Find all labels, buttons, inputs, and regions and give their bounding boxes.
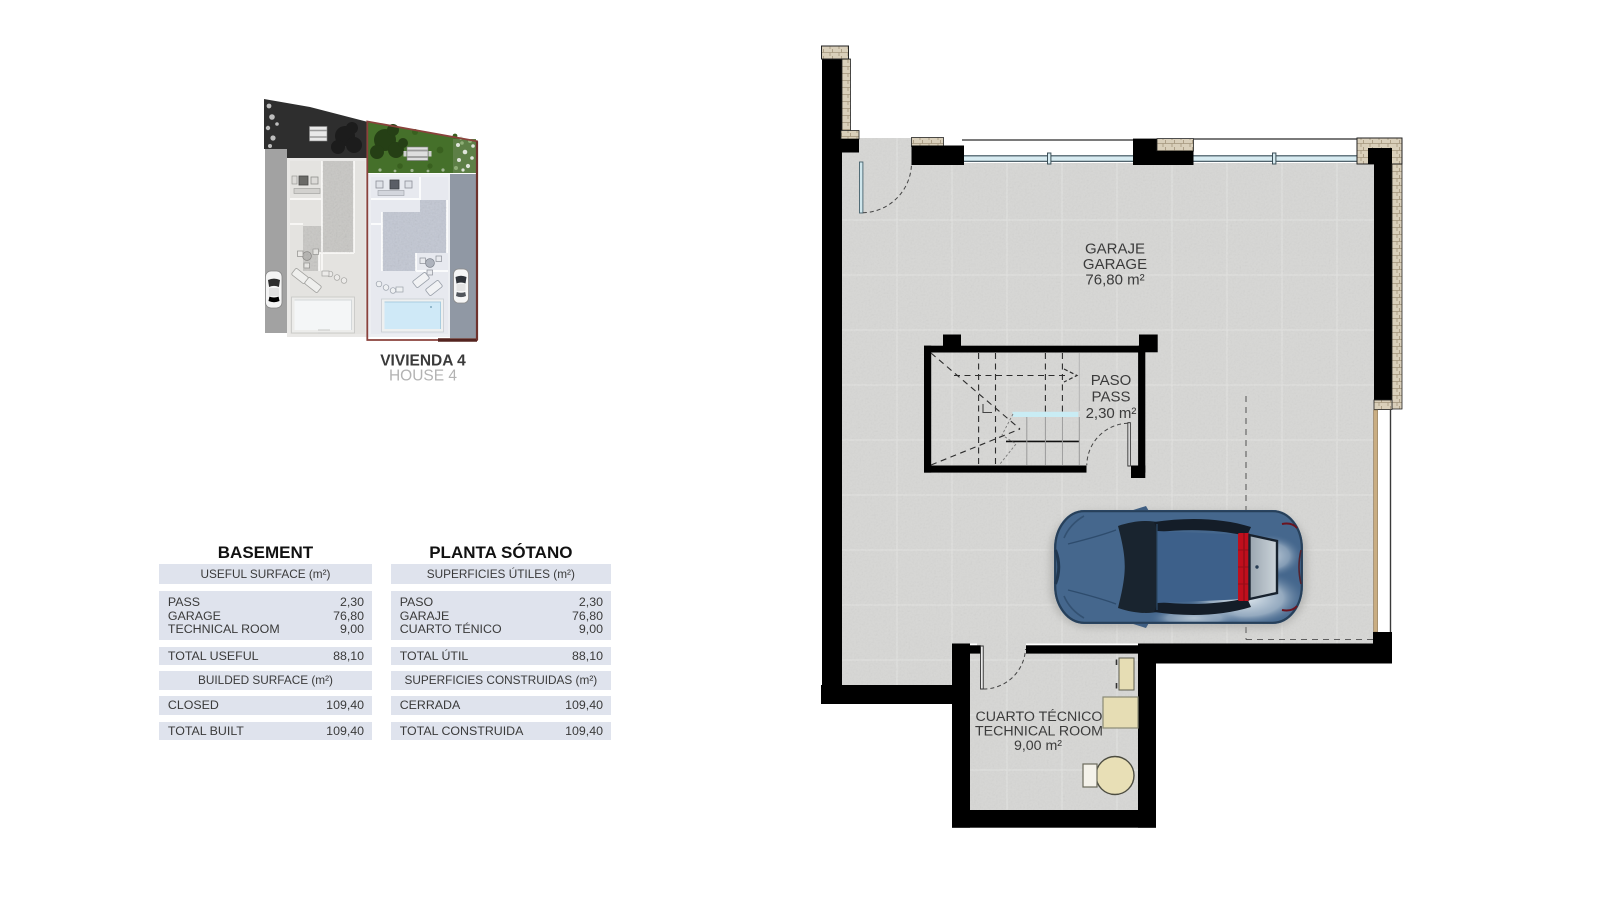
svg-text:2,30 m²: 2,30 m² bbox=[1086, 405, 1137, 422]
svg-text:CUARTO TÉCNICO: CUARTO TÉCNICO bbox=[976, 708, 1103, 725]
svg-text:PASS: PASS bbox=[1092, 389, 1131, 406]
svg-text:9,00 m²: 9,00 m² bbox=[1014, 738, 1062, 754]
svg-text:HOUSE 4: HOUSE 4 bbox=[389, 368, 457, 385]
svg-text:GARAGE: GARAGE bbox=[1083, 256, 1147, 273]
svg-text:PASO: PASO bbox=[1091, 372, 1132, 389]
svg-text:GARAJE: GARAJE bbox=[1085, 241, 1145, 258]
svg-text:76,80 m²: 76,80 m² bbox=[1085, 272, 1144, 289]
